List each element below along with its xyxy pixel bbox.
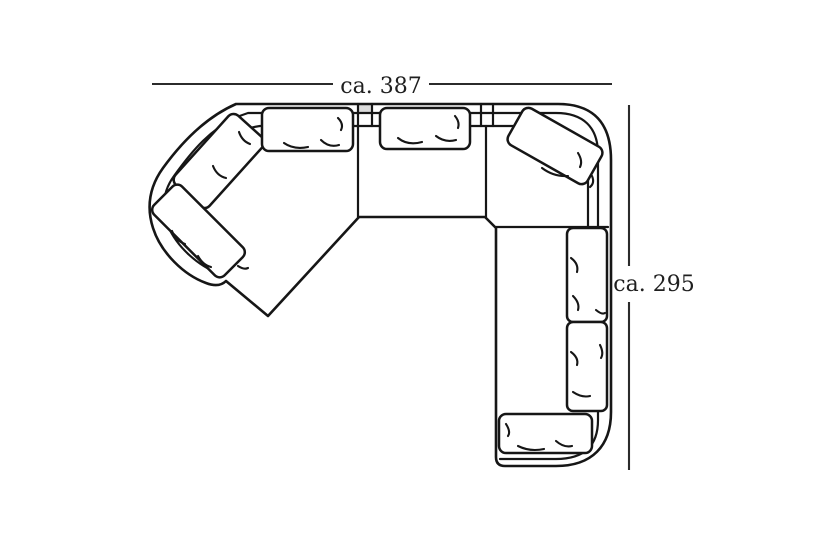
depth-dimension-label: ca. 295 bbox=[613, 272, 694, 297]
back-cushion-top-2 bbox=[380, 108, 470, 149]
back-cushion-right-1 bbox=[567, 228, 607, 322]
sofa-dimension-diagram: ca. 387 ca. 295 bbox=[0, 0, 825, 550]
depth-dimension: ca. 295 bbox=[613, 105, 694, 470]
cushion-wrinkle bbox=[238, 266, 248, 269]
width-dimension-label: ca. 387 bbox=[340, 74, 421, 99]
seat-cushion-bottom-end bbox=[499, 414, 592, 453]
sofa-top-view-drawing: ca. 387 ca. 295 bbox=[0, 0, 825, 550]
back-cushion-right-2 bbox=[567, 322, 607, 411]
module-gap-shading bbox=[359, 105, 371, 113]
width-dimension: ca. 387 bbox=[152, 74, 612, 99]
